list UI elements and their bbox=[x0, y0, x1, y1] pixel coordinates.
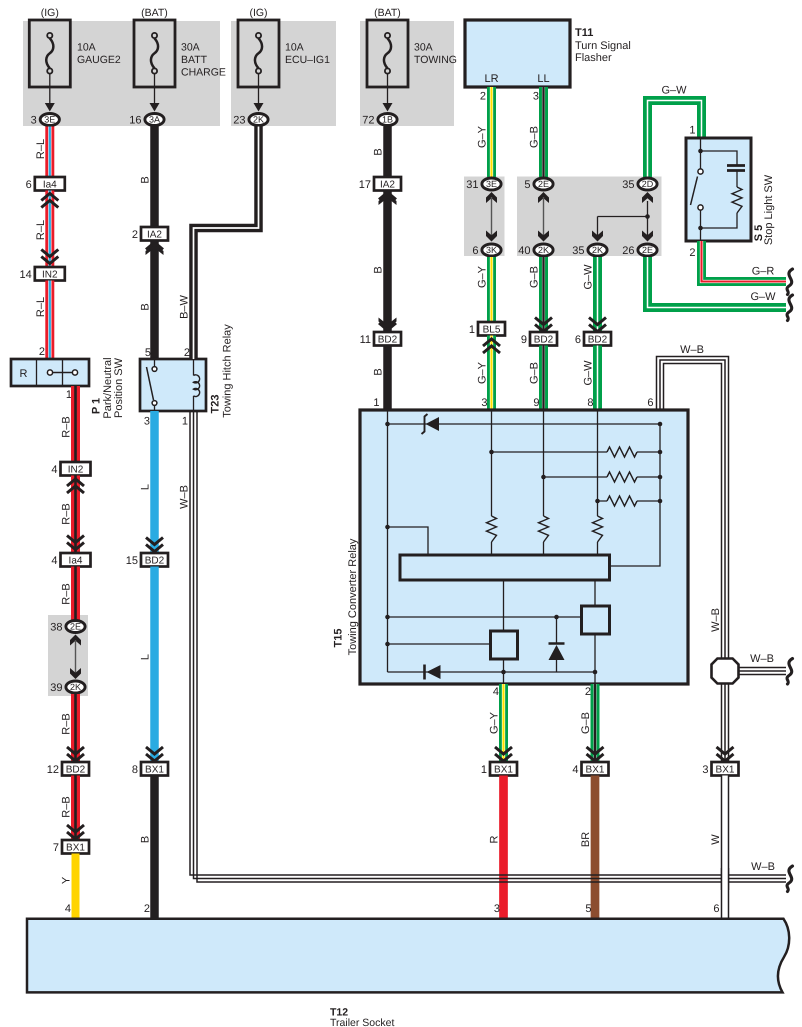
svg-text:2: 2 bbox=[689, 247, 695, 259]
svg-text:3: 3 bbox=[533, 91, 539, 103]
svg-text:G–W: G–W bbox=[750, 291, 776, 303]
svg-text:BD2: BD2 bbox=[66, 765, 86, 776]
svg-text:T11: T11 bbox=[575, 27, 593, 39]
svg-text:G–B: G–B bbox=[529, 126, 541, 148]
svg-text:IA2: IA2 bbox=[380, 180, 395, 191]
svg-text:W–B: W–B bbox=[710, 608, 722, 632]
svg-text:(IG): (IG) bbox=[249, 7, 267, 19]
svg-text:G–Y: G–Y bbox=[477, 265, 489, 288]
svg-text:15: 15 bbox=[126, 555, 138, 567]
svg-text:R–L: R–L bbox=[35, 297, 47, 317]
svg-text:72: 72 bbox=[362, 115, 374, 127]
svg-text:B: B bbox=[140, 176, 152, 183]
svg-text:B: B bbox=[373, 148, 385, 155]
svg-text:40: 40 bbox=[518, 245, 530, 257]
svg-text:IN2: IN2 bbox=[42, 270, 58, 281]
svg-text:35: 35 bbox=[572, 245, 584, 257]
svg-text:14: 14 bbox=[20, 269, 32, 281]
svg-text:3: 3 bbox=[702, 764, 708, 776]
svg-text:9: 9 bbox=[533, 397, 539, 409]
svg-text:6: 6 bbox=[647, 397, 653, 409]
svg-text:(BAT): (BAT) bbox=[374, 7, 401, 19]
svg-text:B: B bbox=[140, 303, 152, 310]
svg-text:1: 1 bbox=[469, 324, 475, 336]
svg-text:T23: T23 bbox=[210, 395, 222, 414]
svg-text:2K: 2K bbox=[592, 245, 603, 255]
svg-text:L: L bbox=[140, 654, 152, 660]
svg-text:R: R bbox=[20, 368, 28, 380]
svg-text:B–W: B–W bbox=[179, 294, 191, 318]
svg-text:10A: 10A bbox=[285, 42, 304, 54]
svg-text:4: 4 bbox=[51, 464, 57, 476]
svg-text:BD2: BD2 bbox=[145, 556, 165, 567]
svg-text:Y: Y bbox=[61, 876, 73, 884]
svg-text:BX1: BX1 bbox=[494, 765, 513, 776]
svg-text:R–B: R–B bbox=[61, 503, 73, 524]
svg-text:Towing Converter Relay: Towing Converter Relay bbox=[347, 538, 359, 655]
svg-text:5: 5 bbox=[585, 903, 591, 915]
svg-text:3: 3 bbox=[144, 416, 150, 428]
svg-text:5: 5 bbox=[524, 179, 530, 191]
svg-text:T15: T15 bbox=[333, 629, 345, 648]
svg-text:B: B bbox=[373, 368, 385, 375]
svg-text:W–B: W–B bbox=[680, 344, 704, 356]
svg-text:3: 3 bbox=[494, 903, 500, 915]
svg-text:4: 4 bbox=[493, 686, 499, 698]
svg-text:2: 2 bbox=[184, 347, 190, 359]
svg-text:BD2: BD2 bbox=[588, 335, 608, 346]
svg-text:Position SW: Position SW bbox=[113, 357, 125, 418]
svg-text:2D: 2D bbox=[642, 179, 654, 189]
svg-text:CHARGE: CHARGE bbox=[181, 67, 226, 79]
svg-text:BATT: BATT bbox=[181, 54, 208, 66]
svg-text:39: 39 bbox=[50, 682, 62, 694]
svg-text:12: 12 bbox=[47, 764, 59, 776]
svg-text:L: L bbox=[140, 484, 152, 490]
svg-text:26: 26 bbox=[622, 245, 634, 257]
svg-text:G–B: G–B bbox=[529, 362, 541, 384]
svg-text:(BAT): (BAT) bbox=[141, 7, 168, 19]
svg-text:IN2: IN2 bbox=[68, 465, 84, 476]
svg-text:(IG): (IG) bbox=[41, 7, 59, 19]
svg-text:5: 5 bbox=[145, 347, 151, 359]
svg-text:BX1: BX1 bbox=[586, 765, 605, 776]
svg-text:LR: LR bbox=[484, 73, 498, 85]
svg-text:BX1: BX1 bbox=[145, 765, 164, 776]
svg-text:BD2: BD2 bbox=[378, 335, 398, 346]
svg-text:3A: 3A bbox=[149, 115, 160, 125]
svg-text:2: 2 bbox=[132, 229, 138, 241]
svg-text:23: 23 bbox=[233, 115, 245, 127]
svg-text:16: 16 bbox=[129, 115, 141, 127]
svg-text:6: 6 bbox=[26, 179, 32, 191]
svg-text:P 1: P 1 bbox=[91, 398, 103, 414]
svg-text:38: 38 bbox=[50, 622, 62, 634]
svg-text:9: 9 bbox=[521, 334, 527, 346]
svg-text:Trailer Socket: Trailer Socket bbox=[330, 1017, 394, 1027]
svg-text:W–B: W–B bbox=[179, 485, 191, 509]
svg-text:1: 1 bbox=[481, 764, 487, 776]
svg-text:B: B bbox=[373, 266, 385, 273]
svg-text:G–R: G–R bbox=[752, 266, 775, 278]
svg-text:8: 8 bbox=[587, 397, 593, 409]
svg-text:1: 1 bbox=[182, 416, 188, 428]
svg-text:BL5: BL5 bbox=[483, 325, 501, 336]
svg-text:Stop Light SW: Stop Light SW bbox=[763, 174, 775, 245]
svg-text:R–B: R–B bbox=[61, 416, 73, 437]
svg-text:2: 2 bbox=[480, 91, 486, 103]
svg-text:30A: 30A bbox=[414, 42, 433, 54]
svg-text:Ia4: Ia4 bbox=[69, 556, 83, 567]
svg-text:2K: 2K bbox=[70, 682, 81, 692]
svg-text:30A: 30A bbox=[181, 42, 200, 54]
svg-text:IA2: IA2 bbox=[147, 230, 162, 241]
svg-text:10A: 10A bbox=[77, 42, 96, 54]
svg-text:G–Y: G–Y bbox=[477, 361, 489, 384]
svg-text:4: 4 bbox=[65, 903, 71, 915]
svg-text:G–W: G–W bbox=[583, 360, 595, 386]
svg-text:G–B: G–B bbox=[529, 266, 541, 288]
svg-text:GAUGE2: GAUGE2 bbox=[77, 54, 121, 66]
svg-text:TOWING: TOWING bbox=[414, 54, 457, 66]
svg-text:17: 17 bbox=[359, 179, 371, 191]
svg-text:35: 35 bbox=[622, 179, 634, 191]
svg-text:1B: 1B bbox=[382, 115, 393, 125]
svg-text:W: W bbox=[710, 834, 722, 845]
svg-text:Ia4: Ia4 bbox=[43, 180, 57, 191]
svg-text:2K: 2K bbox=[253, 115, 264, 125]
svg-text:ECU–IG1: ECU–IG1 bbox=[285, 54, 330, 66]
svg-text:G–W: G–W bbox=[661, 85, 687, 97]
svg-text:6: 6 bbox=[575, 334, 581, 346]
svg-text:8: 8 bbox=[132, 764, 138, 776]
svg-text:BX1: BX1 bbox=[66, 843, 85, 854]
svg-text:Turn Signal: Turn Signal bbox=[575, 40, 631, 52]
svg-text:BX1: BX1 bbox=[716, 765, 735, 776]
svg-text:2: 2 bbox=[39, 346, 45, 358]
svg-text:W–B: W–B bbox=[750, 653, 774, 665]
svg-text:W–B: W–B bbox=[751, 861, 775, 873]
svg-text:3: 3 bbox=[31, 115, 37, 127]
svg-text:2E: 2E bbox=[538, 179, 549, 189]
svg-text:7: 7 bbox=[53, 842, 59, 854]
svg-text:2E: 2E bbox=[642, 245, 653, 255]
svg-text:BD2: BD2 bbox=[534, 335, 554, 346]
svg-text:2E: 2E bbox=[70, 622, 81, 632]
svg-text:6: 6 bbox=[472, 245, 478, 257]
svg-text:BR: BR bbox=[580, 832, 592, 847]
svg-text:R–L: R–L bbox=[35, 220, 47, 240]
svg-text:R–B: R–B bbox=[61, 713, 73, 734]
svg-text:Towing Hitch Relay: Towing Hitch Relay bbox=[222, 324, 234, 418]
svg-text:R–L: R–L bbox=[35, 139, 47, 159]
svg-text:R–B: R–B bbox=[61, 583, 73, 604]
svg-text:LL: LL bbox=[537, 73, 549, 85]
svg-text:R: R bbox=[489, 835, 501, 843]
svg-text:3: 3 bbox=[481, 397, 487, 409]
svg-text:G–W: G–W bbox=[583, 264, 595, 290]
svg-text:31: 31 bbox=[466, 179, 478, 191]
svg-text:3E: 3E bbox=[44, 115, 55, 125]
svg-text:1: 1 bbox=[373, 397, 379, 409]
svg-text:4: 4 bbox=[51, 555, 57, 567]
svg-text:3E: 3E bbox=[486, 179, 497, 189]
svg-text:11: 11 bbox=[360, 334, 371, 346]
svg-text:2: 2 bbox=[144, 903, 150, 915]
svg-text:R–B: R–B bbox=[61, 796, 73, 817]
svg-text:6: 6 bbox=[713, 903, 719, 915]
svg-text:G–Y: G–Y bbox=[489, 711, 501, 734]
svg-text:G–B: G–B bbox=[580, 712, 592, 734]
svg-text:1: 1 bbox=[689, 125, 695, 137]
svg-text:4: 4 bbox=[572, 764, 578, 776]
svg-text:3K: 3K bbox=[486, 245, 497, 255]
svg-text:B: B bbox=[140, 836, 152, 843]
svg-text:Flasher: Flasher bbox=[575, 52, 612, 64]
svg-text:2K: 2K bbox=[538, 245, 549, 255]
svg-text:G–Y: G–Y bbox=[477, 125, 489, 148]
svg-text:2: 2 bbox=[585, 686, 591, 698]
